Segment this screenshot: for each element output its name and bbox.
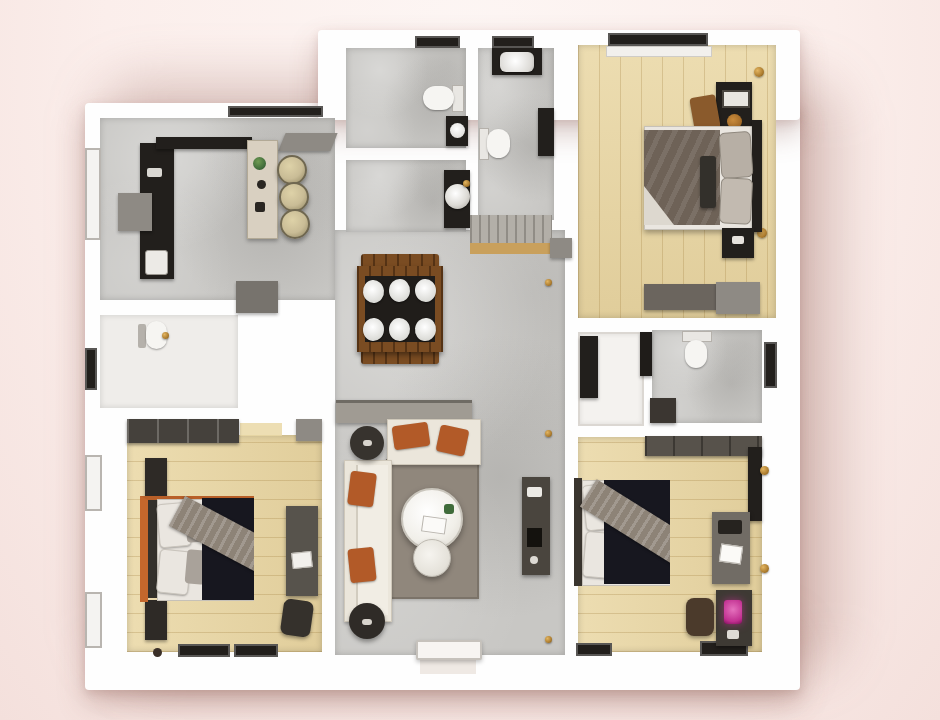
coffee-table-tray: [421, 515, 447, 534]
master-cabinet-screen: [722, 90, 750, 108]
kitchen-counter-top: [156, 137, 252, 149]
sofa-pillow-4: [347, 547, 376, 584]
kitchen-cabinet: [236, 281, 278, 313]
side-table: [413, 539, 451, 577]
bath1-toilet: [423, 86, 454, 110]
bedroom-right-bed: [574, 478, 670, 586]
bar-stool-2: [279, 182, 309, 212]
bedroom-right-monitor: [724, 600, 742, 624]
entry-door: [416, 640, 482, 660]
washing-machine: [445, 184, 470, 209]
bath2-sink: [500, 52, 534, 72]
master-lamp-1: [754, 67, 764, 77]
coffee-table-plant: [444, 504, 454, 514]
sofa-pillow-3: [347, 471, 377, 508]
kitchen-top-window: [228, 106, 323, 117]
bedroom-right-paper: [719, 544, 743, 565]
bedroom-left-bottom-window-1: [178, 644, 230, 657]
bath1-sink: [450, 123, 465, 138]
bar-stool-1: [277, 155, 307, 185]
kitchen-island: [247, 140, 278, 239]
bedroom-right-handle-1: [760, 466, 769, 475]
bedroom-right-wardrobe: [645, 436, 762, 456]
bedroom-left-doorstop: [153, 648, 162, 657]
pouf-2-button: [362, 619, 372, 625]
bath2-toilet: [487, 129, 510, 158]
bedroom-left-bottom-window-2: [234, 644, 278, 657]
hall-cabinet-small: [550, 238, 572, 258]
laundry-bench-slats: [470, 215, 552, 245]
bedroom-left-cabinet-top: [296, 419, 322, 441]
master-nightstand-item: [732, 236, 744, 244]
dining-chairs-bottom: [361, 350, 439, 364]
master-bench: [644, 284, 718, 310]
console-item-dark: [527, 528, 542, 547]
hall-door-handle-1: [545, 430, 552, 437]
hall-door-handle-2: [545, 636, 552, 643]
kitchen-sink: [145, 250, 168, 275]
bath3-corner-unit: [650, 398, 676, 423]
sofa-pillow-1: [392, 422, 431, 451]
bath1-window: [415, 36, 460, 48]
master-pillow-2: [719, 177, 753, 225]
bedroom-left-chair: [280, 598, 315, 638]
bedroom-left-desk-paper: [291, 551, 313, 569]
bath2-window: [492, 36, 534, 48]
master-window-sill: [606, 46, 712, 57]
bedroom-right-laptop: [718, 520, 742, 534]
pouf-1-button: [363, 440, 372, 446]
kitchen-stove: [118, 193, 152, 231]
island-plant: [253, 157, 266, 170]
utility-fixture: [162, 332, 169, 339]
bedroom-right-handle-2: [760, 564, 769, 573]
laundry-wood-strip: [470, 243, 552, 254]
bar-stool-3: [280, 209, 310, 239]
hall-door-handle-3: [545, 279, 552, 286]
utility-toilet-tank: [138, 324, 146, 348]
bedroom-left-window-1: [85, 455, 102, 511]
bath3-door-leaf: [640, 332, 652, 376]
bedroom-left-doorway: [240, 423, 282, 436]
master-dresser: [716, 282, 760, 314]
bath3-right-window: [764, 342, 777, 388]
master-pillow-1: [718, 131, 753, 179]
master-headboard: [752, 120, 762, 232]
bedroom-right-chair: [686, 598, 714, 636]
bedroom-left-bed: [140, 496, 254, 602]
utility-left-window: [85, 348, 97, 390]
bedroom-right-keyboard: [727, 630, 739, 639]
laundry-fixture: [463, 180, 470, 187]
kitchen-left-window: [85, 148, 101, 240]
console-knob: [530, 556, 538, 564]
bedroom-left-wardrobe: [127, 419, 239, 443]
island-board: [255, 202, 265, 212]
bedroom-left-nightstand-bottom: [145, 600, 167, 640]
bedroom-right-tall-unit: [748, 447, 762, 521]
kitchen-counter-item: [147, 168, 162, 177]
closet-unit: [580, 336, 598, 398]
bath2-closet: [538, 108, 554, 156]
console-item-white: [527, 487, 542, 497]
bedroom-left-window-2: [85, 592, 102, 648]
bedroom-left-nightstand-top: [145, 458, 167, 500]
utility-floor: [100, 315, 238, 408]
bath3-toilet: [685, 340, 707, 368]
floor-plan-scene: [0, 0, 940, 720]
master-runner: [700, 156, 716, 208]
kitchen-hood: [278, 133, 337, 151]
sofa-pillow-2: [436, 424, 470, 456]
master-window: [608, 33, 708, 46]
bedroom-right-headboard: [574, 478, 582, 586]
island-bowl: [257, 180, 266, 189]
bedroom-right-bottom-window-1: [576, 643, 612, 656]
